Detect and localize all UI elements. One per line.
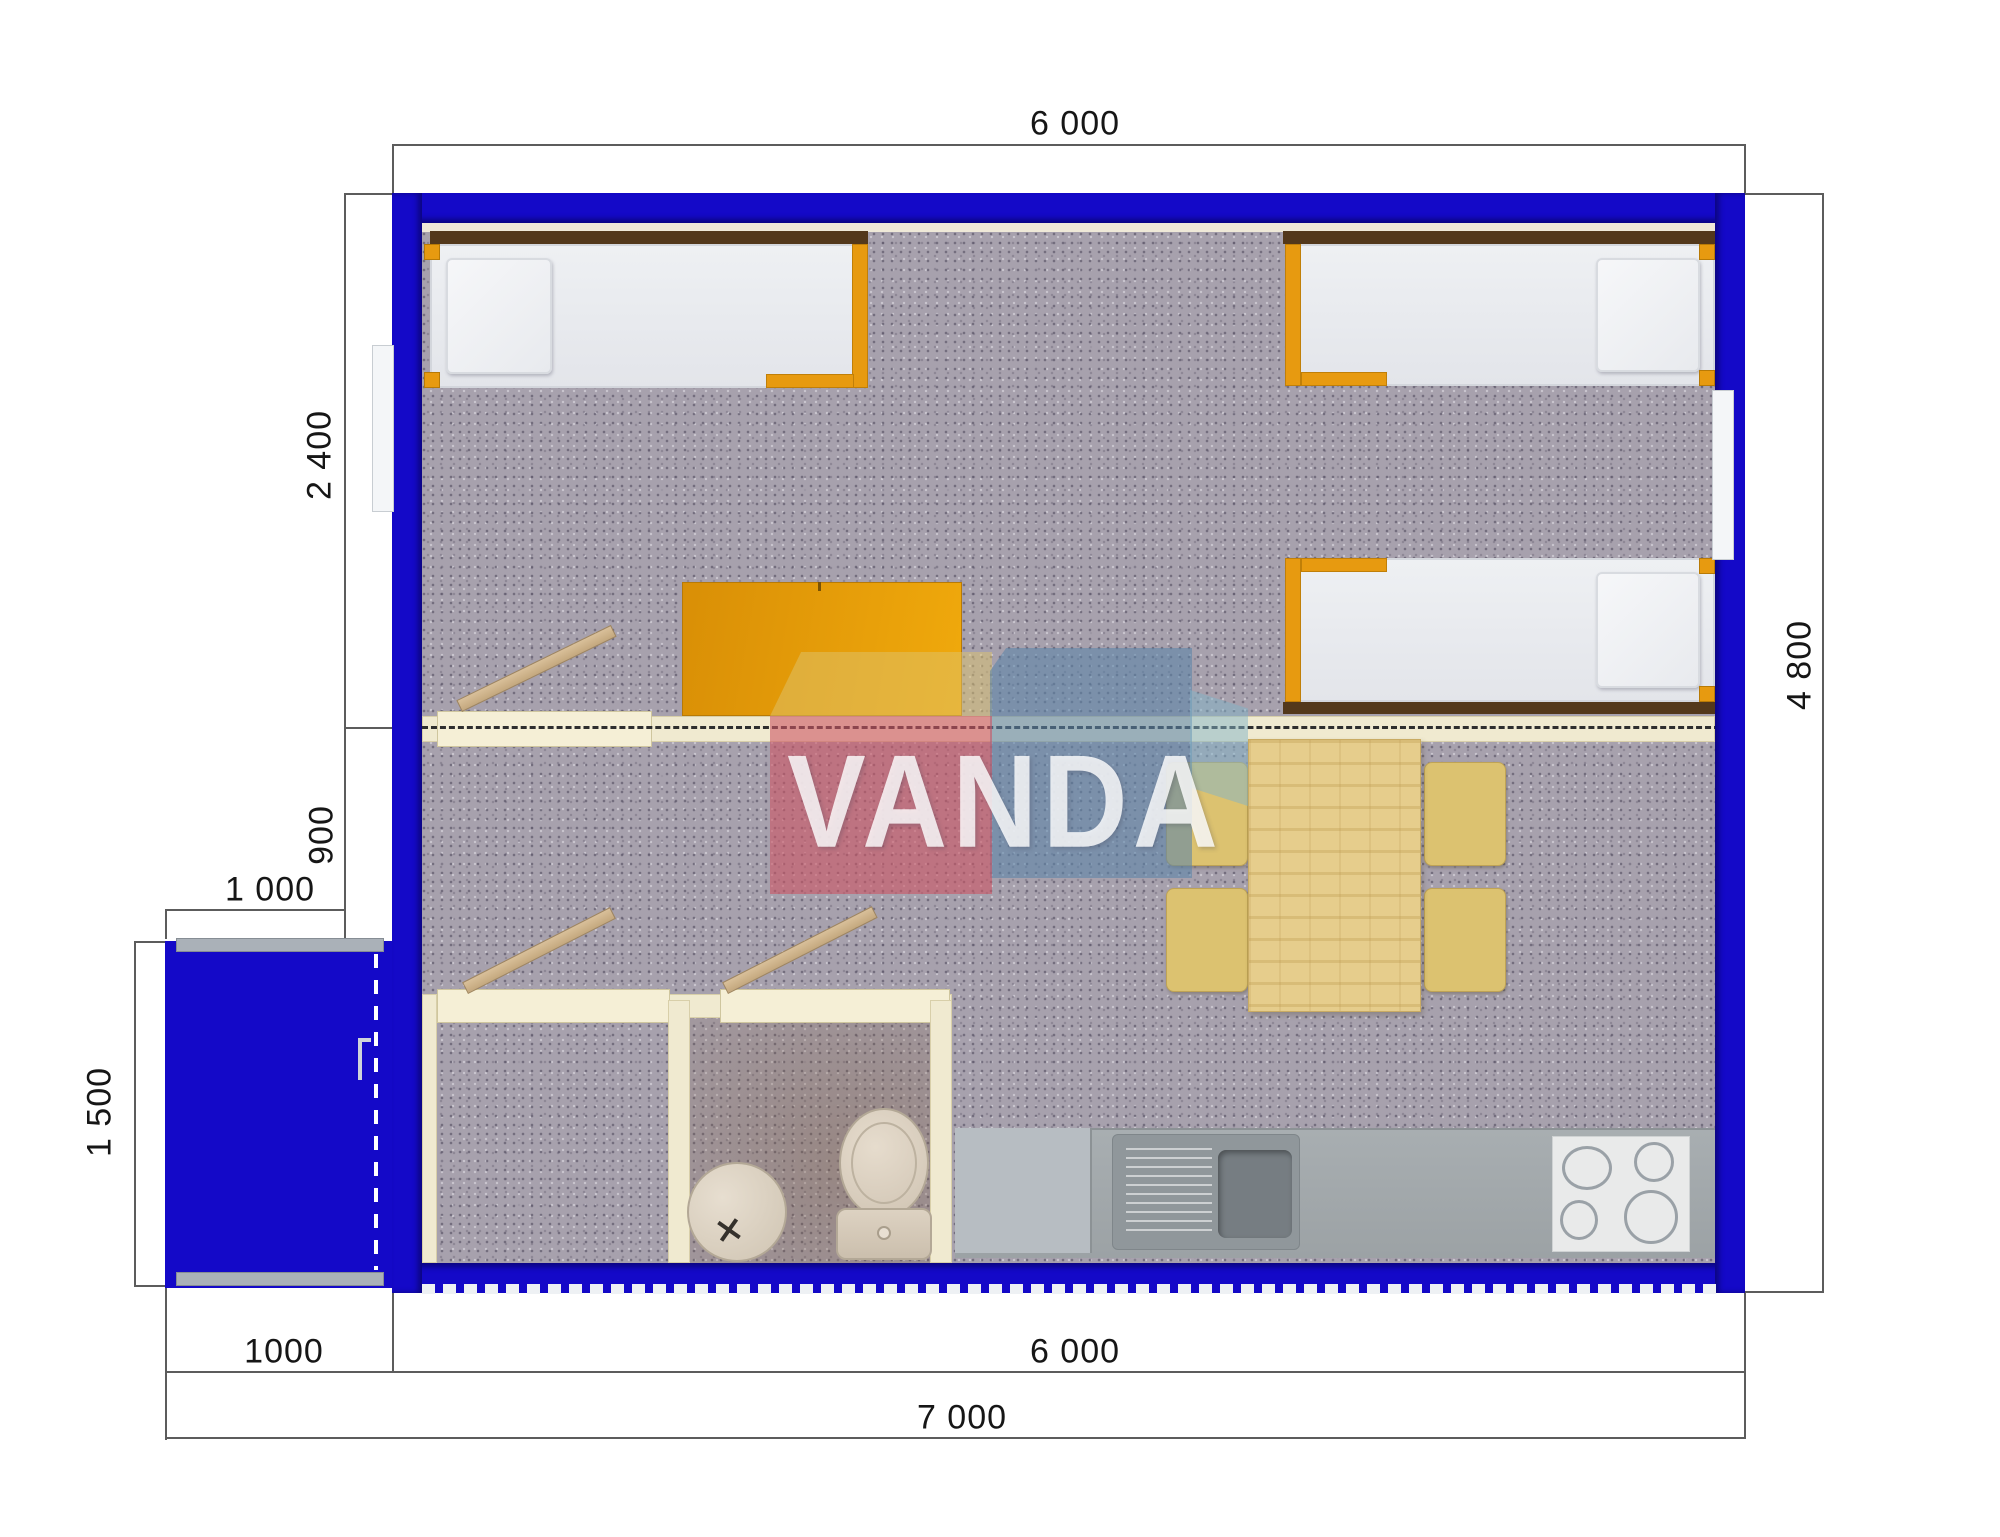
desk-notch — [818, 582, 821, 591]
bed2-headboard-shelf — [1283, 231, 1715, 244]
kitchen-cabinet-left — [955, 1128, 1092, 1253]
dim-ext-porch-depth-top — [134, 941, 166, 943]
dim-label-porch-width: 1 000 — [225, 871, 315, 910]
bed-2-frame-foot-rail — [1301, 372, 1387, 386]
porch-door-handle-top — [358, 1038, 371, 1042]
bed-1-frame-foot-rail — [766, 374, 854, 388]
bed-3-frame-head-rail — [1301, 558, 1387, 572]
dim-label-main-depth: 4 800 — [1781, 620, 1820, 710]
chair-bottom-right — [1424, 888, 1506, 992]
partition-dashed-centerline — [422, 726, 1720, 729]
dim-ext-top-left — [392, 144, 394, 194]
bed-3-pillow — [1596, 572, 1700, 688]
dim-label-total-width: 7 000 — [917, 1399, 1007, 1438]
bathroom-door-lintel-left — [437, 989, 670, 1023]
dim-label-bottom-porch: 1000 — [244, 1333, 324, 1372]
dim-ext-porch-left — [165, 909, 167, 939]
bed-1-frame-right-rail — [852, 244, 868, 388]
chair-top-left — [1166, 762, 1248, 866]
dim-ext-bottom-porchleft — [165, 1286, 167, 1440]
toilet-lid-line — [851, 1122, 917, 1204]
bed-2-post-tr — [1699, 244, 1715, 260]
toilet-flush-button — [877, 1226, 891, 1240]
dim-ext-bottom-right — [1744, 1293, 1746, 1439]
porch-door-handle — [358, 1038, 362, 1080]
bed-3-post-br — [1699, 686, 1715, 702]
wall-right — [1715, 193, 1745, 1293]
stove-burner-br — [1624, 1190, 1678, 1244]
window-right-wall — [1712, 390, 1734, 560]
bed1-headboard-shelf — [430, 231, 868, 244]
bed-3-foot-shelf — [1283, 702, 1715, 714]
dim-ext-bottom-housleft — [392, 1293, 394, 1373]
bed-1-post-bl — [424, 372, 440, 388]
bottom-dashed-roofline — [422, 1284, 1720, 1294]
wall-left — [392, 193, 422, 1293]
bed-3-frame-left-rail — [1285, 558, 1301, 702]
bathroom-sink — [687, 1162, 787, 1262]
kitchen-drainboard — [1126, 1148, 1212, 1238]
dim-line-top — [392, 144, 1745, 146]
bed-1-post-tl — [424, 244, 440, 260]
dim-ext-right-top — [1745, 193, 1824, 195]
bed-2-frame-left-rail — [1285, 244, 1301, 386]
window-left-wall — [372, 345, 394, 512]
bed-2-pillow — [1596, 258, 1700, 372]
porch-deck — [165, 941, 392, 1288]
dim-label-hall-depth: 900 — [303, 805, 342, 865]
bathroom-right-wall — [930, 1000, 952, 1263]
porch-door-dashed-line — [374, 954, 378, 1270]
porch-step-bottom — [176, 1272, 384, 1286]
chair-bottom-left — [1166, 888, 1248, 992]
dim-line-porch-depth — [134, 941, 136, 1287]
dim-label-bedroom-depth: 2 400 — [301, 410, 340, 500]
dim-ext-top-right — [1744, 144, 1746, 194]
dim-label-top-width: 6 000 — [1030, 105, 1120, 144]
bed-3-post-tr — [1699, 558, 1715, 574]
dim-ext-porch-depth-bottom — [134, 1285, 166, 1287]
dim-ext-left-top — [344, 193, 392, 195]
dim-label-porch-depth: 1 500 — [81, 1067, 120, 1157]
stove-burner-bl — [1560, 1200, 1598, 1240]
dim-line-bottom — [165, 1371, 1745, 1373]
bedroom-door-lintel — [437, 711, 652, 747]
dining-table — [1248, 739, 1421, 1012]
floor-plan-canvas: 6 000 2 400 900 1 000 1 500 1000 6 000 7… — [0, 0, 2000, 1537]
stove-burner-tr — [1634, 1142, 1674, 1182]
porch-step-top — [176, 938, 384, 952]
chair-top-right — [1424, 762, 1506, 866]
dim-line-left — [344, 193, 346, 940]
bathroom-left-lining — [422, 994, 437, 1263]
dim-ext-right-bottom — [1745, 1291, 1824, 1293]
desk — [682, 582, 962, 716]
bed-2-post-br — [1699, 370, 1715, 386]
kitchen-sink-basin — [1218, 1150, 1292, 1238]
wall-top — [392, 193, 1745, 223]
bathroom-door-lintel-right — [720, 989, 950, 1023]
stove-burner-tl — [1562, 1146, 1612, 1190]
dim-line-right — [1822, 193, 1824, 1293]
bed-1-pillow — [446, 258, 552, 374]
dim-label-bottom-main: 6 000 — [1030, 1333, 1120, 1372]
bathroom-divider-wall — [668, 1000, 690, 1263]
